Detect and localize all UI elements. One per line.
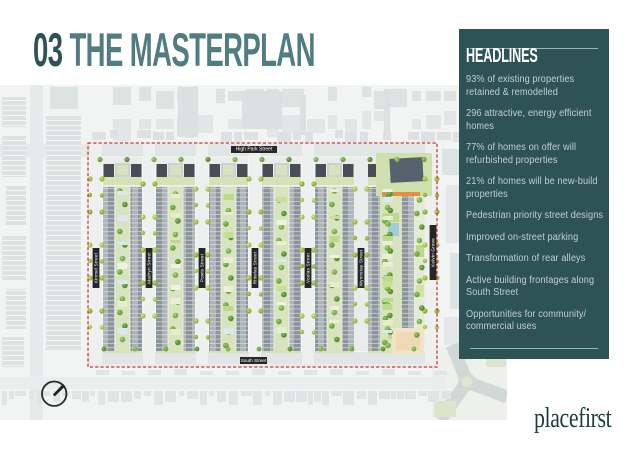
svg-text:Madryn Street: Madryn Street — [147, 252, 152, 284]
svg-text:Powis Street: Powis Street — [200, 253, 205, 282]
svg-text:Wynnstay Street: Wynnstay Street — [359, 249, 364, 286]
svg-text:Voelas Street: Voelas Street — [306, 253, 311, 283]
svg-text:South Street: South Street — [241, 358, 267, 363]
svg-text:Kinmel Street: Kinmel Street — [94, 252, 99, 283]
svg-text:High Park Street: High Park Street — [236, 147, 273, 153]
svg-text:Kelvin Grove: Kelvin Grove — [431, 238, 436, 267]
svg-text:Rhiwlas Street: Rhiwlas Street — [253, 251, 258, 284]
